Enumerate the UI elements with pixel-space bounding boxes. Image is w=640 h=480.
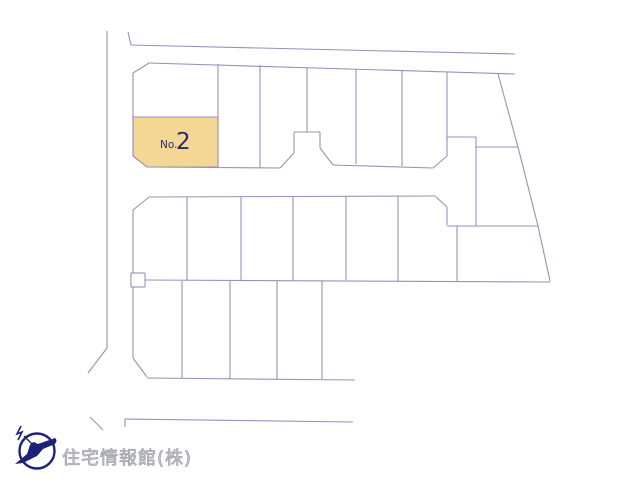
boundary-segment — [125, 419, 353, 422]
boundary-segment — [149, 196, 435, 197]
boundary-segment — [131, 45, 515, 54]
boundary-segment — [320, 148, 333, 165]
boundary-segment — [147, 378, 355, 380]
boundary-segment — [149, 63, 515, 74]
lot-number-prefix: No. — [160, 139, 177, 151]
plot-map-page: No. 2 住宅情報館(株) — [0, 0, 640, 480]
lot-layout-diagram: No. 2 — [0, 0, 640, 480]
boundary-segment — [280, 153, 294, 168]
lot-number-value: 2 — [176, 129, 191, 155]
boundary-segment — [128, 32, 131, 45]
boundary-segment — [145, 280, 550, 282]
boundary-segment — [133, 197, 149, 210]
boundary-segment — [333, 165, 433, 168]
boundary-segment — [88, 348, 107, 373]
lot-boundary-lines — [88, 31, 550, 430]
boundary-segment — [433, 156, 447, 168]
boundary-segment — [133, 358, 147, 377]
company-name-label: 住宅情報館(株) — [62, 444, 192, 470]
boundary-segment — [435, 196, 447, 207]
boundary-segment — [90, 417, 103, 430]
right-boundary-diagonal — [498, 74, 550, 281]
company-logo-bird-in-circle-icon — [12, 423, 60, 473]
boundary-segment — [133, 63, 149, 73]
